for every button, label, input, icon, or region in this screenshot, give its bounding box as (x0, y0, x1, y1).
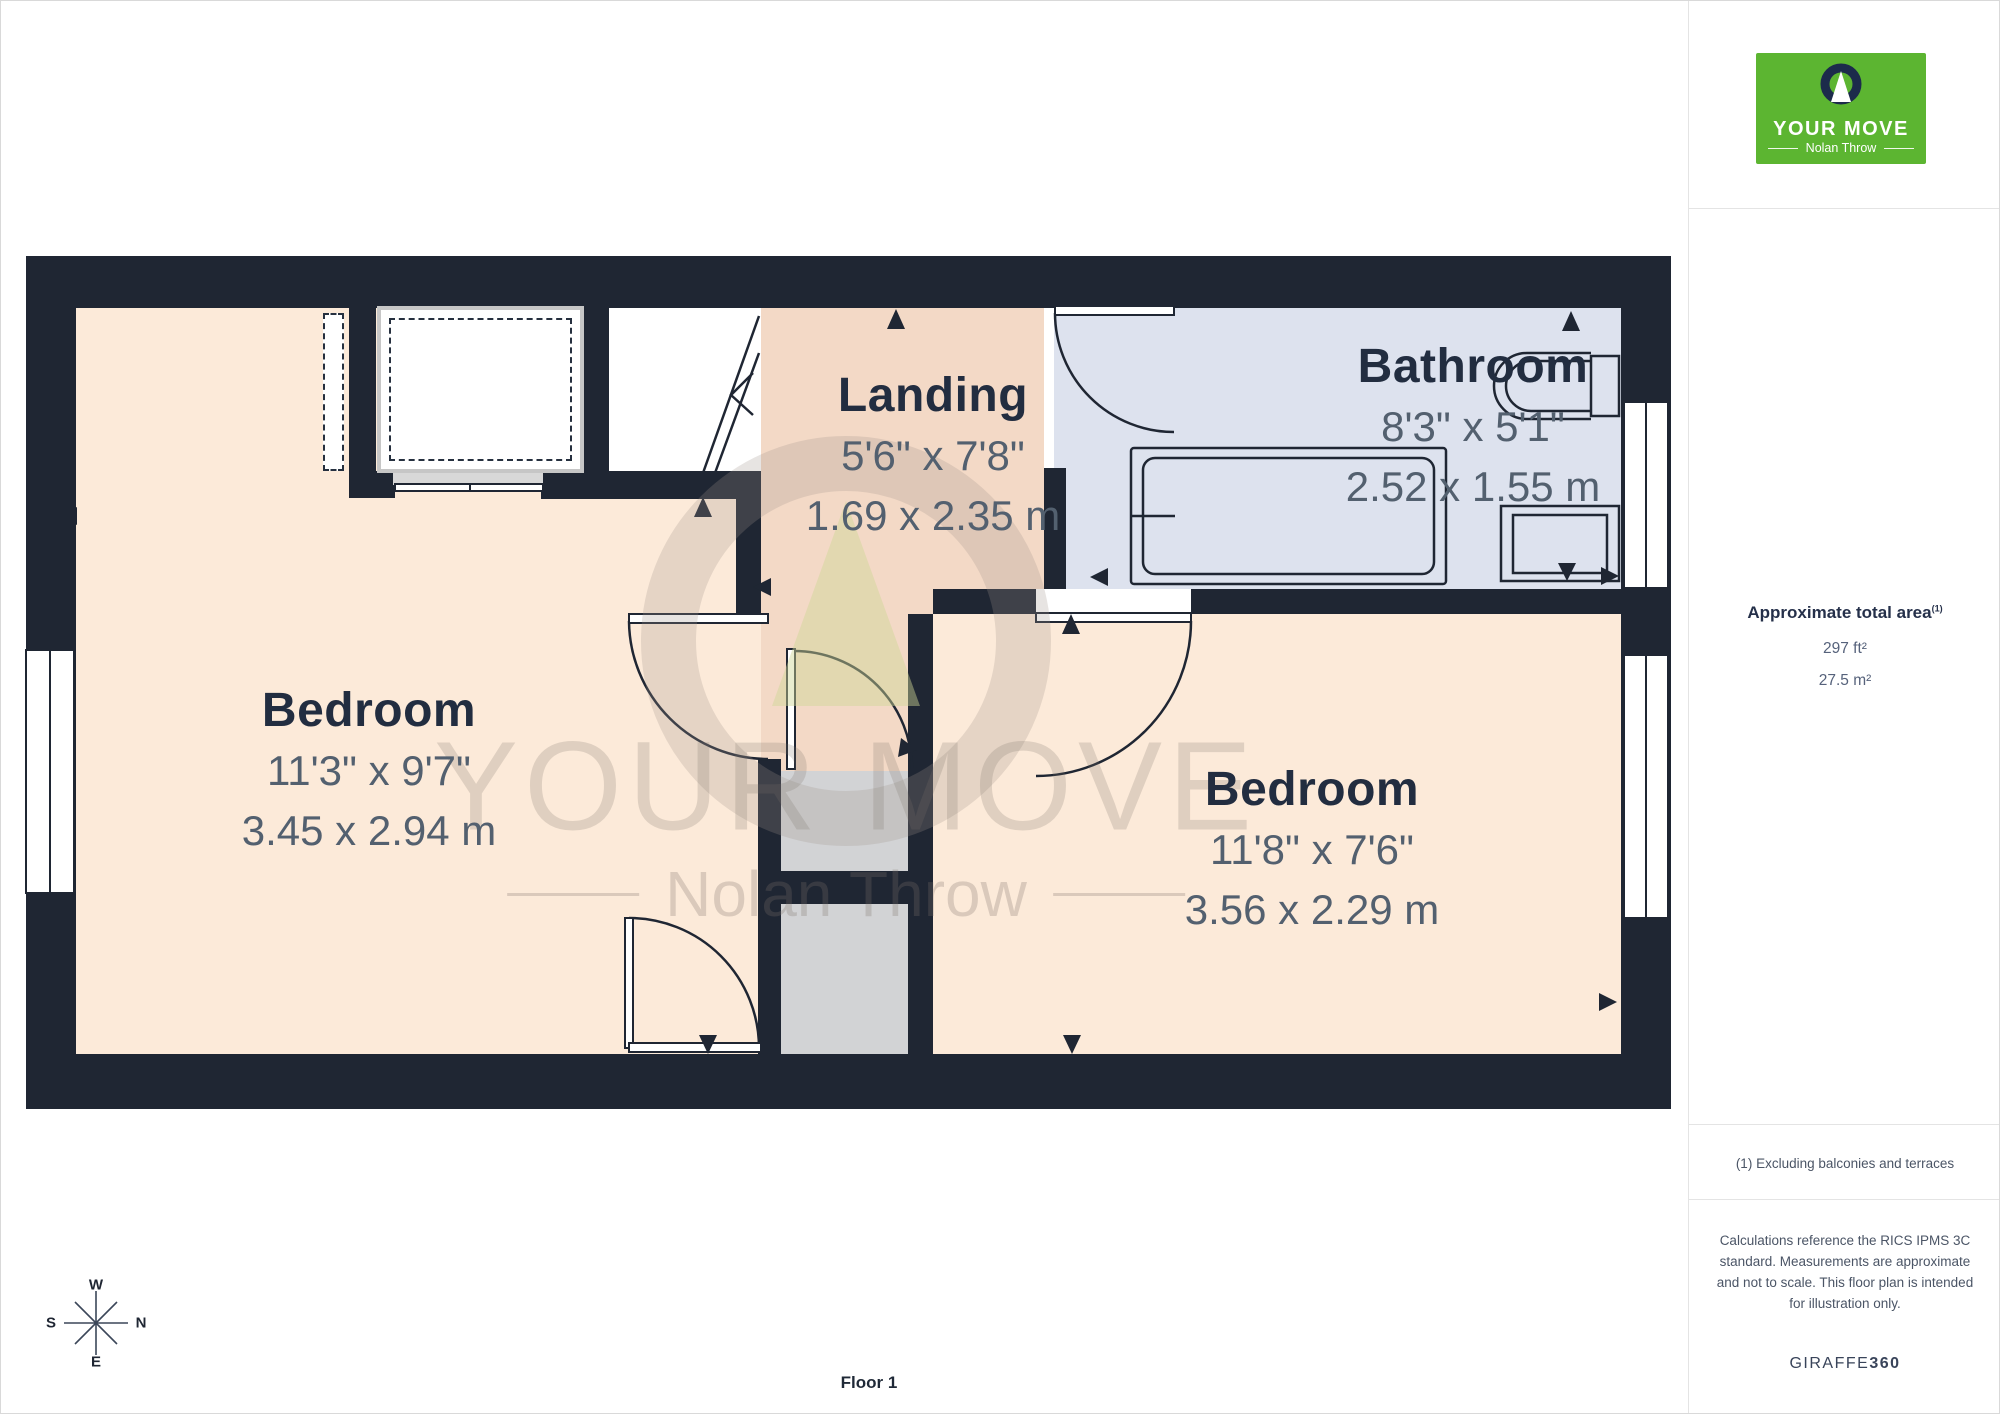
wall-landing-bathroom (1044, 468, 1066, 589)
disclaimer: Calculations reference the RICS IPMS 3C … (1713, 1231, 1977, 1315)
window-bedroom-right (1623, 654, 1669, 919)
compass-west: W (89, 1277, 103, 1294)
sidebar-line-1 (1688, 208, 2000, 209)
wall-bedroom-right-top-right (1191, 589, 1621, 614)
total-area-block: Approximate total area(1) 297 ft² 27.5 m… (1695, 603, 1995, 697)
logo-subtitle: Nolan Throw (1806, 141, 1877, 155)
window-bathroom (1623, 401, 1669, 589)
compass-star (64, 1291, 128, 1355)
brand-suffix: 360 (1869, 1355, 1900, 1372)
total-area-imperial: 297 ft² (1695, 633, 1995, 665)
your-move-logo-icon (1819, 63, 1863, 107)
watermark-logo-triangle (772, 501, 920, 706)
logo-line-left (1768, 148, 1798, 149)
wall-bottom (26, 1054, 1671, 1109)
watermark-line-right (1053, 893, 1185, 896)
logo-title: YOUR MOVE (1756, 118, 1926, 141)
dormer-window-tick (469, 485, 471, 490)
watermark-subtitle-row: Nolan Throw (507, 857, 1185, 931)
staircase-area (609, 306, 761, 473)
total-area-title-text: Approximate total area (1747, 603, 1931, 622)
giraffe360-brand: GIRAFFE360 (1695, 1355, 1995, 1373)
watermark-line-left (507, 893, 639, 896)
footnote: (1) Excluding balconies and terraces (1698, 1154, 1992, 1175)
floorplan-page: YOUR MOVE Nolan Throw Bedroom 11'3" x 9'… (0, 0, 2000, 1414)
watermark-title: YOUR MOVE (434, 714, 1258, 859)
wall-top (26, 256, 1671, 308)
logo-subtitle-row: Nolan Throw (1756, 141, 1926, 155)
floor-label: Floor 1 (841, 1373, 898, 1393)
window-mullion (49, 651, 51, 892)
brand-name: GIRAFFE (1789, 1355, 1869, 1372)
total-area-metric: 27.5 m² (1695, 665, 1995, 697)
wall-stub-dormer-right (584, 306, 609, 473)
sidebar-divider (1688, 1, 1689, 1414)
sidebar-line-2 (1688, 1124, 2000, 1125)
wall-stub-dormer-left (349, 306, 376, 498)
total-area-title: Approximate total area(1) (1695, 603, 1995, 623)
logo-line-right (1884, 148, 1914, 149)
sidebar-line-3 (1688, 1199, 2000, 1200)
your-move-logo: YOUR MOVE Nolan Throw (1756, 53, 1926, 164)
watermark-subtitle: Nolan Throw (665, 857, 1027, 931)
window-bedroom-left (25, 649, 75, 894)
dormer-window-frame (377, 306, 584, 473)
compass-east: E (91, 1354, 101, 1371)
bathroom-floor (1054, 306, 1621, 589)
compass-north: N (136, 1315, 147, 1332)
dormer-window-line (394, 483, 544, 492)
wall-sill-left (349, 471, 395, 498)
total-area-superscript: (1) (1932, 603, 1943, 613)
window-mullion (1645, 656, 1647, 917)
dormer-dashed-outline (389, 318, 572, 461)
ceiling-height-dashed-outline (323, 313, 344, 471)
compass-south: S (46, 1315, 56, 1332)
window-mullion (1645, 403, 1647, 587)
